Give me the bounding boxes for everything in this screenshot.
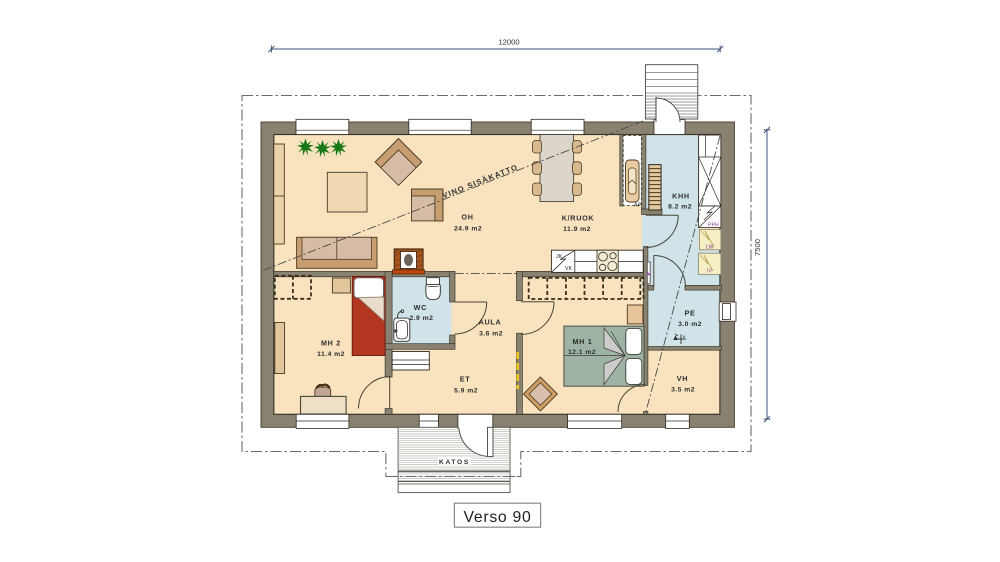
svg-text:LW: LW xyxy=(706,245,713,251)
svg-text:KHH: KHH xyxy=(672,192,690,201)
svg-text:VK: VK xyxy=(565,266,572,272)
svg-text:11.4 m2: 11.4 m2 xyxy=(317,351,345,358)
svg-text:OH: OH xyxy=(461,213,473,222)
svg-text:Verso 90: Verso 90 xyxy=(464,509,532,526)
svg-text:3.6 m2: 3.6 m2 xyxy=(479,331,503,338)
svg-text:AP: AP xyxy=(634,203,642,209)
svg-text:2.9 m2: 2.9 m2 xyxy=(409,315,433,322)
svg-text:AULA: AULA xyxy=(479,318,502,327)
svg-text:JK: JK xyxy=(556,254,563,260)
svg-text:MH 2: MH 2 xyxy=(321,339,341,348)
svg-text:PPH: PPH xyxy=(708,223,719,229)
svg-text:KATOS: KATOS xyxy=(439,459,470,466)
svg-text:IV: IV xyxy=(707,269,712,275)
svg-text:3.5 m2: 3.5 m2 xyxy=(671,387,695,394)
svg-text:3.0 m2: 3.0 m2 xyxy=(678,321,702,328)
svg-text:5.9 m2: 5.9 m2 xyxy=(454,388,478,395)
svg-text:PE: PE xyxy=(685,309,696,318)
svg-text:K/RUOK: K/RUOK xyxy=(562,214,595,223)
svg-text:12000: 12000 xyxy=(498,38,519,47)
svg-text:WC: WC xyxy=(414,303,427,312)
svg-text:24.9 m2: 24.9 m2 xyxy=(454,226,482,233)
svg-text:11.9 m2: 11.9 m2 xyxy=(563,226,591,233)
svg-text:ET: ET xyxy=(460,375,471,384)
svg-text:MH 1: MH 1 xyxy=(573,337,593,346)
svg-text:VH: VH xyxy=(677,374,688,383)
svg-text:7500: 7500 xyxy=(753,239,762,256)
svg-text:12.1 m2: 12.1 m2 xyxy=(568,349,596,356)
svg-text:8.2 m2: 8.2 m2 xyxy=(668,204,692,211)
